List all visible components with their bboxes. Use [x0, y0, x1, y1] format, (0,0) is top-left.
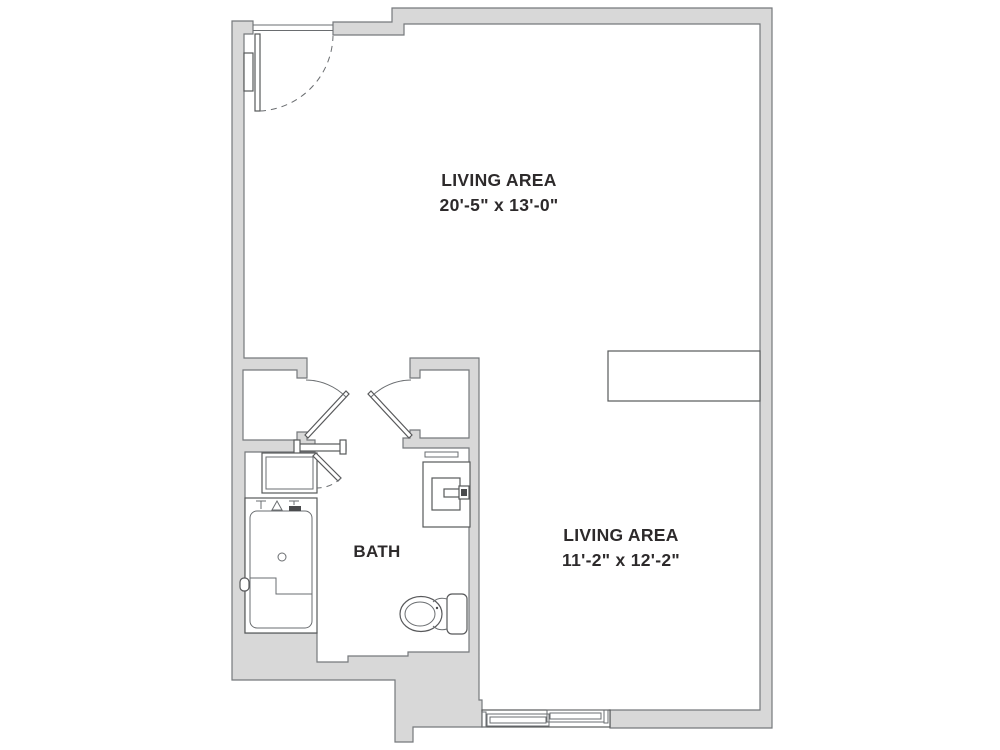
closet-left-door-leaf: [305, 391, 349, 438]
living-area-1-label: LIVING AREA: [441, 170, 556, 190]
closet-left-door-arc: [306, 380, 346, 397]
toilet-tank: [447, 594, 467, 634]
wall-shelf: [244, 53, 253, 91]
shower-grab-fitting: [240, 578, 249, 591]
shower-pan: [245, 498, 317, 633]
entry-door: [244, 25, 333, 111]
sliding-door-panel: [297, 444, 346, 451]
floor-plan-canvas: LIVING AREA 20'-5" x 13'-0" LIVING AREA …: [0, 0, 1000, 750]
closet-right-door-leaf: [368, 391, 412, 438]
floor-plan-drawing: LIVING AREA 20'-5" x 13'-0" LIVING AREA …: [0, 0, 1000, 750]
bath-label: BATH: [353, 542, 400, 561]
door-frame-lines: [253, 25, 333, 31]
entry-door-swing-arc: [260, 36, 333, 111]
closet-left-door: [305, 380, 349, 438]
roll-in-shower: [240, 498, 317, 633]
counter-outline: [608, 351, 760, 401]
toilet-flush-dot: [436, 607, 438, 609]
wall-sink: [423, 452, 470, 527]
wall-core-left: [232, 21, 482, 742]
living-area-2-dims: 11'-2" x 12'-2": [562, 550, 680, 570]
living-area-2-label: LIVING AREA: [563, 525, 678, 545]
living-area-1-dims: 20'-5" x 13'-0": [440, 195, 559, 215]
linen-cabinet: [262, 453, 341, 493]
closet-right-door-arc: [371, 380, 411, 397]
sink-shelf: [425, 452, 458, 457]
sliding-window: [482, 710, 610, 727]
counter-partition: [608, 351, 760, 401]
sliding-door-guide-left: [294, 440, 300, 454]
cabinet-outline: [262, 453, 317, 493]
entry-door-leaf: [255, 34, 260, 111]
sliding-door-guide-right: [340, 440, 346, 454]
toilet: [400, 594, 467, 634]
closet-right-door: [368, 380, 412, 438]
shower-control: [289, 506, 301, 511]
sink-faucet-handle: [461, 489, 467, 496]
